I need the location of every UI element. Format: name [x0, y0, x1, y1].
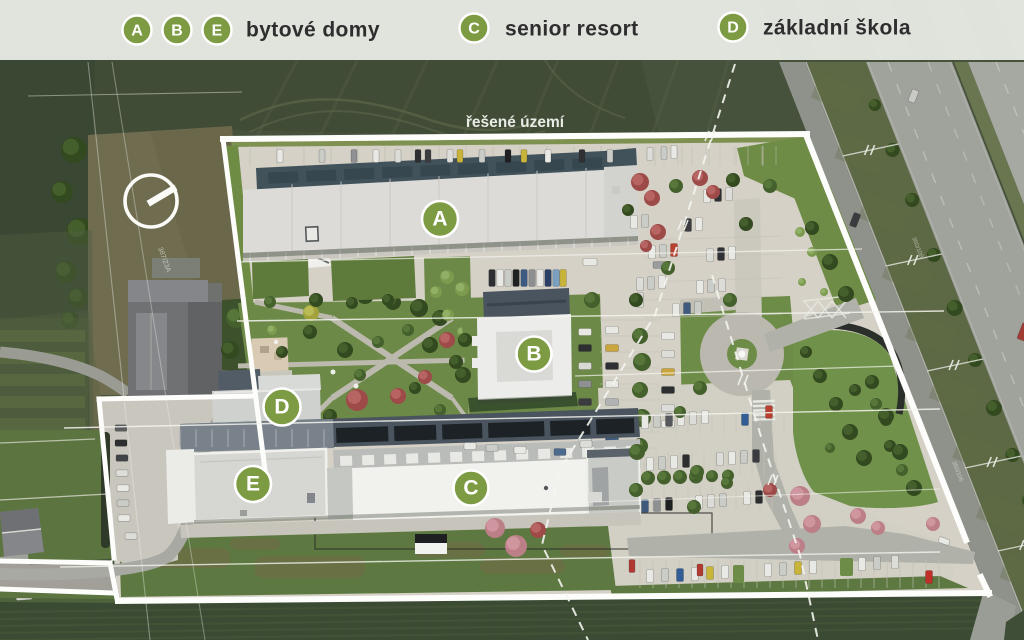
svg-text:B: B: [171, 23, 183, 40]
svg-text:základní škola: základní škola: [763, 17, 911, 40]
svg-text:D: D: [727, 20, 739, 37]
svg-text:E: E: [212, 23, 223, 40]
svg-text:A: A: [131, 23, 143, 40]
svg-text:řešené území: řešené území: [466, 114, 565, 131]
svg-text:A: A: [432, 208, 447, 231]
svg-text:D: D: [274, 396, 289, 419]
svg-text:C: C: [468, 21, 480, 38]
svg-text:B: B: [526, 343, 541, 366]
svg-text:C: C: [463, 477, 478, 500]
svg-text:bytové domy: bytové domy: [246, 19, 380, 42]
svg-text:E: E: [246, 473, 260, 496]
svg-text:senior resort: senior resort: [505, 18, 639, 41]
